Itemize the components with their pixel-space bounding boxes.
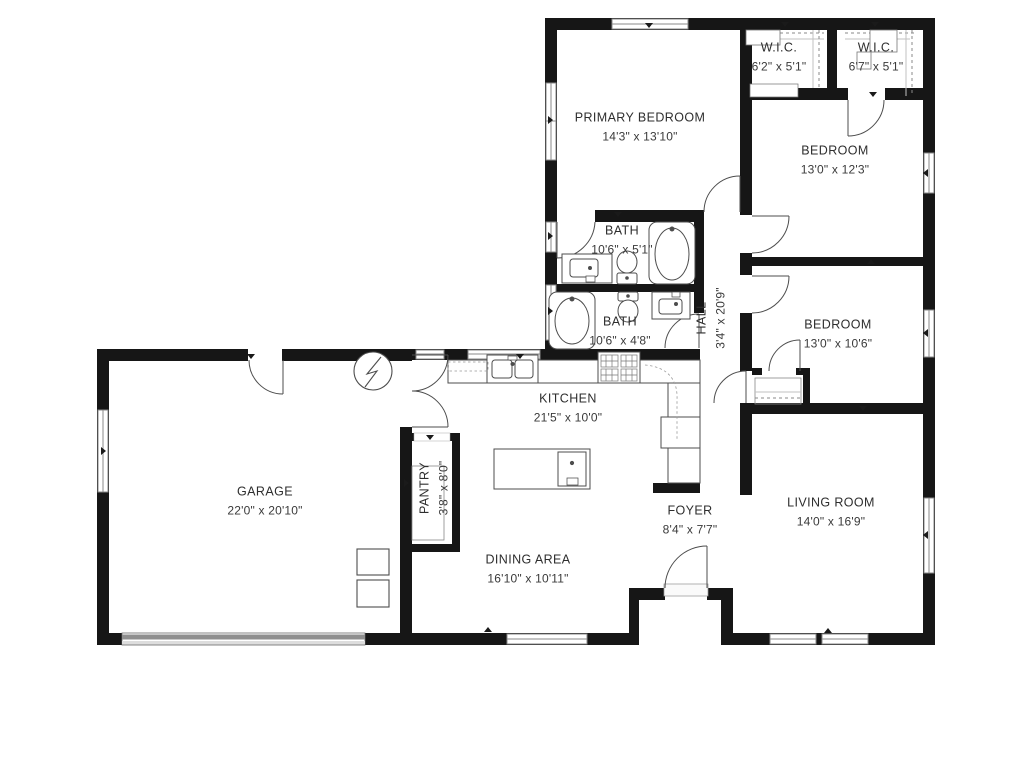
garage-door-icon [122,633,365,645]
direction-marker-icon [824,628,832,633]
appliance-icon-2 [357,580,389,607]
direction-marker-icon [869,92,877,97]
sink-icon-bath1 [562,254,612,283]
kitchen-counter-top [448,360,700,383]
door-slider-icon-wic1 [750,84,798,97]
floor-plan: W.I.C. 6'2" x 5'1" W.I.C. 6'7" x 5'1" PR… [0,0,1024,768]
bath1-fixtures [562,222,695,284]
door-swing-icon-bedroom1 [752,216,789,253]
direction-markers [101,22,928,633]
door-swing-icon-mudroom-a [412,355,448,391]
floor-plan-drawing [0,0,1024,768]
door-swing-icon-garage-entry [249,360,283,394]
shelf-wic2-a [870,30,897,52]
window-icon-living-bottom-2 [822,634,868,644]
door-swing-icon-closet [769,340,800,371]
range-icon [598,352,640,383]
door-swing-icon-mudroom-b [412,391,448,427]
door-swing-icon-primary-bedroom [704,176,740,212]
pantry-shelf [412,466,444,540]
bathtub-icon-bath1 [649,222,695,284]
direction-marker-icon [247,354,255,359]
window-icon-living-bottom-1 [770,634,816,644]
sink-icon-bath2 [652,292,690,319]
toilet-icon-bath1 [617,251,637,284]
water-heater-icon [354,352,392,390]
exterior-walls [97,18,935,645]
door-swing-icon-hall-end [714,371,746,403]
shelf-wic2-b [857,52,871,69]
door-swing-icon-wic2 [848,100,884,136]
closet-rod-icon-bedroom2 [755,378,801,404]
sink-icon-kitchen [487,355,538,383]
door-swing-icon-bath1 [557,222,595,258]
appliance-icon-1 [357,549,389,575]
garage-fixtures [354,352,392,607]
bath2-fixtures [549,292,690,349]
refrigerator-icon [661,417,700,448]
toilet-icon-bath2 [618,292,638,322]
dresser-wic1 [746,30,780,45]
door-swing-icon-front [664,546,708,596]
kitchen-fixtures [448,352,700,489]
windows [98,19,934,644]
direction-marker-icon [484,627,492,632]
bathtub-icon-bath2 [549,292,595,349]
window-icon-dining [507,634,587,644]
door-swing-icon-bedroom2 [752,276,789,313]
kitchen-island-icon [494,449,590,489]
